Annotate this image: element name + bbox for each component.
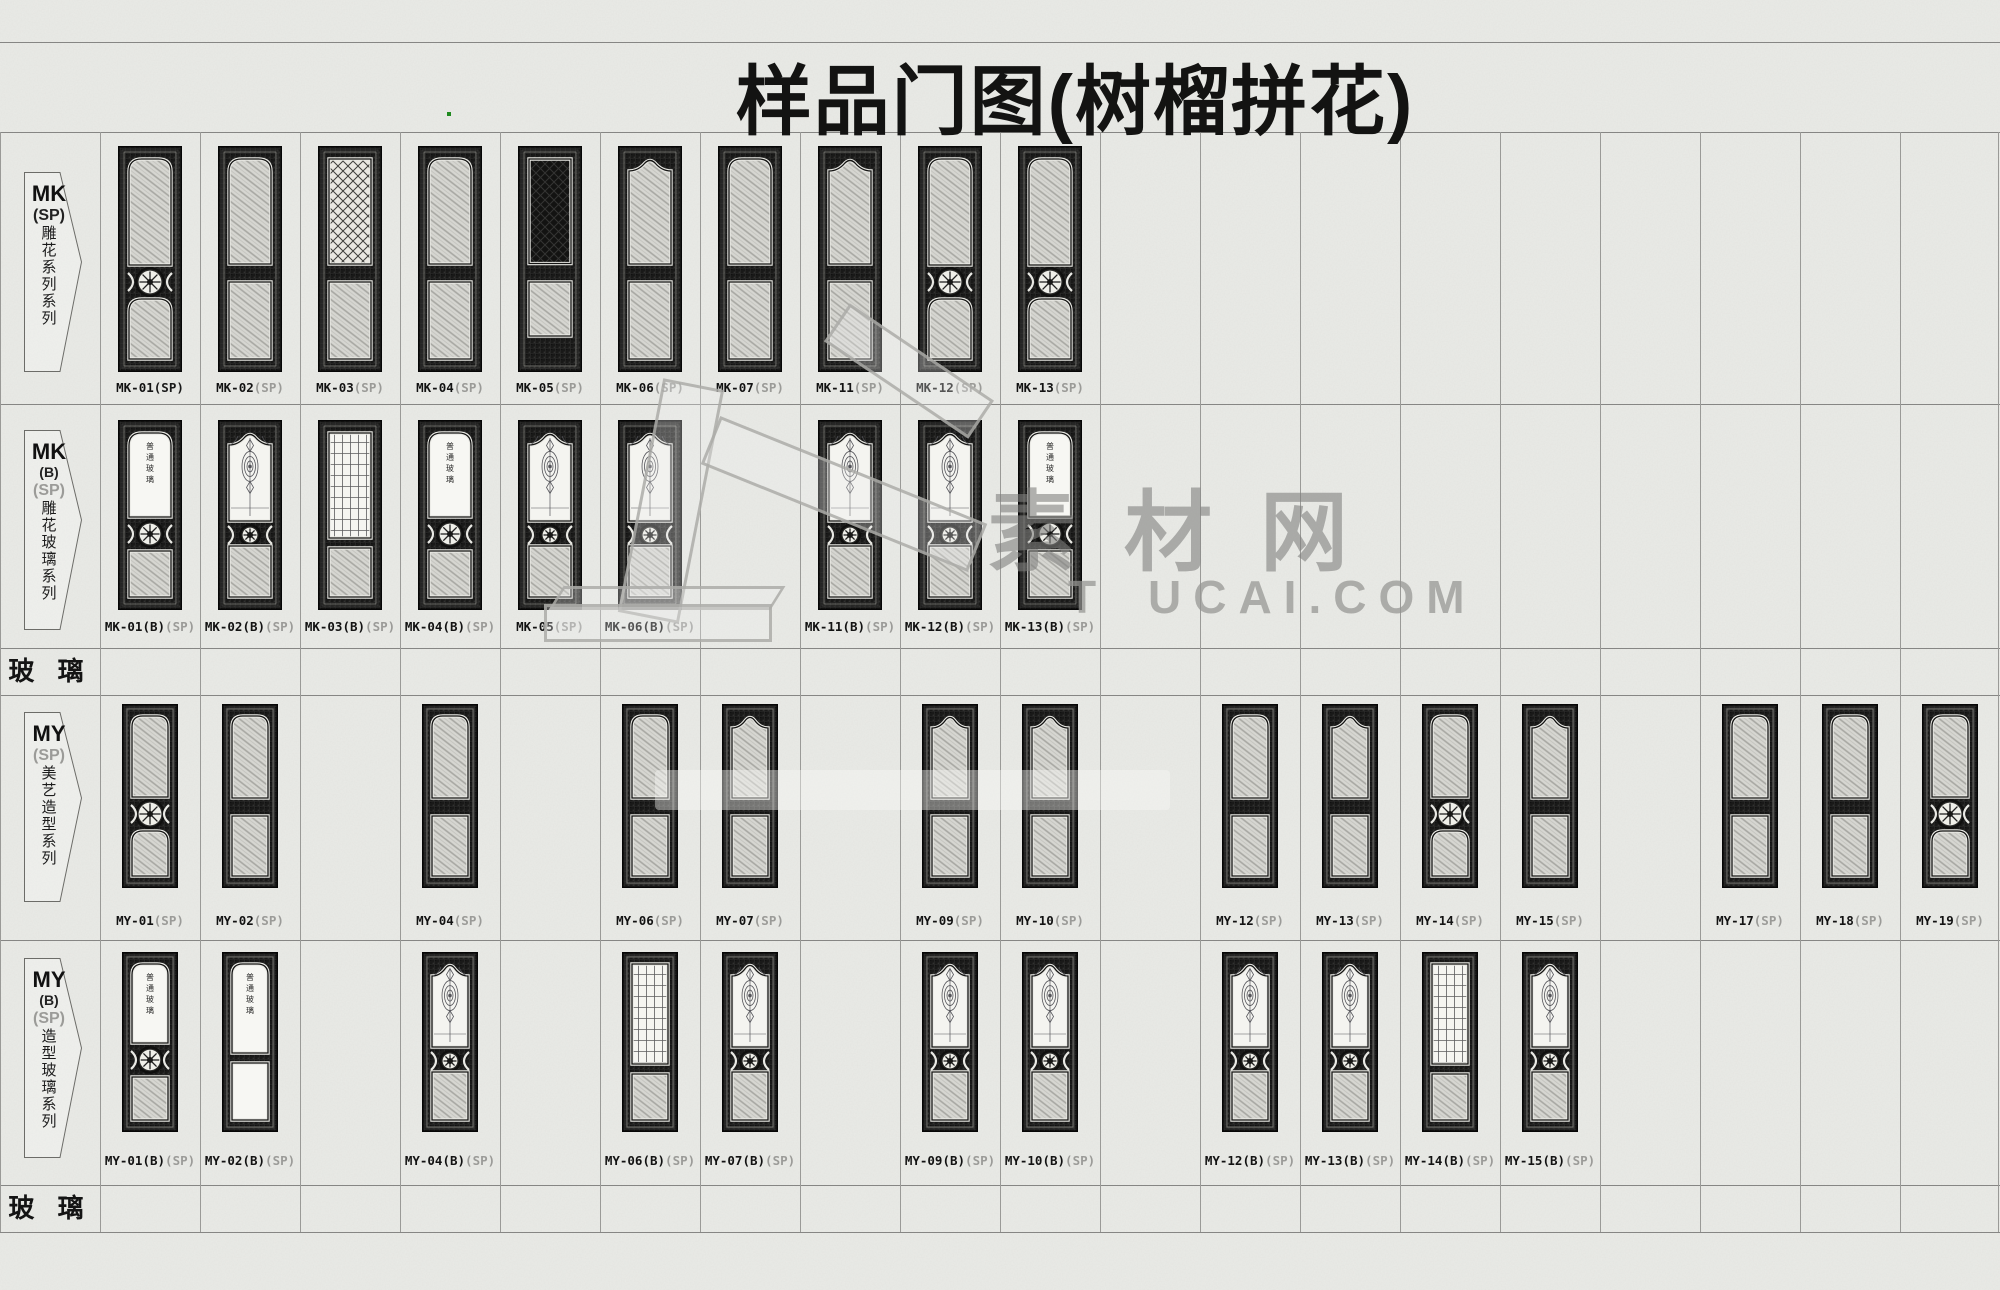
grid-vline — [1900, 132, 1901, 1232]
door-code: MK-02(B) — [205, 619, 265, 634]
series-name-char: 造 — [26, 1028, 72, 1045]
series-suffix: (SP) — [26, 206, 72, 225]
door-code-suffix: (SP) — [554, 380, 584, 395]
page-title: 样品门图(树榴拼花) — [0, 40, 2000, 150]
svg-text:璃: 璃 — [246, 1005, 254, 1015]
grid-vline — [1998, 132, 1999, 1232]
series-name-char: 玻 — [26, 534, 72, 551]
door-label: MK-07(SP) — [700, 380, 800, 395]
door-code: MY-07(B) — [705, 1153, 765, 1168]
door-code-suffix: (SP) — [954, 913, 984, 928]
door-my-09b — [922, 952, 978, 1132]
door-code: MK-13(B) — [1005, 619, 1065, 634]
svg-text:通: 通 — [146, 983, 154, 993]
svg-text:通: 通 — [446, 452, 454, 462]
svg-text:玻: 玻 — [246, 994, 254, 1004]
grid-vline — [800, 132, 801, 1232]
grid-vline — [1200, 132, 1201, 1232]
door-mk-05 — [518, 146, 582, 372]
door-my-09 — [922, 704, 978, 888]
door-code: MY-04(B) — [405, 1153, 465, 1168]
grid-vline — [400, 132, 401, 1232]
series-badge-mk-b-sp: MK(B)(SP)雕花玻璃系列 — [24, 430, 82, 630]
door-label: MK-06(B)(SP) — [600, 619, 700, 634]
grid-vline — [500, 132, 501, 1232]
door-code-suffix: (SP) — [1054, 913, 1084, 928]
door-code: MY-12(B) — [1205, 1153, 1265, 1168]
door-code-suffix: (SP) — [1354, 913, 1384, 928]
door-code: MY-14(B) — [1405, 1153, 1465, 1168]
door-mk-12b — [918, 420, 982, 610]
door-code: MY-13(B) — [1305, 1153, 1365, 1168]
door-code-suffix: (SP) — [665, 619, 695, 634]
door-code: MY-12 — [1216, 913, 1254, 928]
door-code: MY-06(B) — [605, 1153, 665, 1168]
series-name-char: 系 — [26, 259, 72, 276]
door-code-suffix: (SP) — [465, 1153, 495, 1168]
door-my-06 — [622, 704, 678, 888]
door-code-suffix: (SP) — [1554, 913, 1584, 928]
series-name-char: 造 — [26, 799, 72, 816]
series-badge-my-b-sp: MY(B)(SP)造型玻璃系列 — [24, 958, 82, 1158]
series-name-char: 列 — [26, 850, 72, 867]
door-code: MK-05 — [516, 380, 554, 395]
grid-vline — [1100, 132, 1101, 1232]
door-code-suffix: (SP) — [454, 380, 484, 395]
door-label: MK-13(SP) — [1000, 380, 1100, 395]
door-code: MK-11 — [816, 380, 854, 395]
svg-text:璃: 璃 — [146, 1005, 154, 1015]
grid-vline — [1500, 132, 1501, 1232]
door-mk-07 — [718, 146, 782, 372]
grid-vline — [1400, 132, 1401, 1232]
door-code-suffix: (SP) — [1954, 913, 1984, 928]
door-code: MK-04 — [416, 380, 454, 395]
door-label: MY-10(B)(SP) — [1000, 1153, 1100, 1168]
door-code: MY-09 — [916, 913, 954, 928]
series-name-char: 列 — [26, 585, 72, 602]
door-code-suffix: (SP) — [154, 380, 184, 395]
door-mk-06b — [618, 420, 682, 610]
door-code: MY-14 — [1416, 913, 1454, 928]
door-mk-05 — [518, 420, 582, 610]
grid-vline — [900, 132, 901, 1232]
door-label: MY-06(SP) — [600, 913, 700, 928]
door-label: MY-01(SP) — [100, 913, 200, 928]
door-mk-01b: 普通玻璃 — [118, 420, 182, 610]
door-mk-12 — [918, 146, 982, 372]
door-code-suffix: (SP) — [1754, 913, 1784, 928]
door-label: MK-03(SP) — [300, 380, 400, 395]
grid-vline — [1700, 132, 1701, 1232]
series-name-char: 系 — [26, 568, 72, 585]
door-my-18 — [1822, 704, 1878, 888]
series-variant: (B) — [26, 992, 72, 1009]
series-code: MK — [26, 440, 72, 464]
svg-text:普: 普 — [146, 972, 154, 982]
door-label: MY-04(SP) — [400, 913, 500, 928]
svg-text:普: 普 — [146, 441, 154, 451]
door-my-12b — [1222, 952, 1278, 1132]
door-code: MK-03 — [316, 380, 354, 395]
door-label: MY-07(SP) — [700, 913, 800, 928]
door-code-suffix: (SP) — [554, 619, 584, 634]
door-my-01 — [122, 704, 178, 888]
door-mk-13b: 普通玻璃 — [1018, 420, 1082, 610]
door-my-02 — [222, 704, 278, 888]
series-name-char: 璃 — [26, 1079, 72, 1096]
series-badge-text: MY(B)(SP)造型玻璃系列 — [26, 968, 72, 1130]
door-mk-03b — [318, 420, 382, 610]
door-label: MK-02(B)(SP) — [200, 619, 300, 634]
door-code: MY-06 — [616, 913, 654, 928]
door-label: MK-11(B)(SP) — [800, 619, 900, 634]
series-name-char: 玻 — [26, 1062, 72, 1079]
door-code: MY-13 — [1316, 913, 1354, 928]
grid-vline — [1800, 132, 1801, 1232]
door-code-suffix: (SP) — [1854, 913, 1884, 928]
grid-vline — [1600, 132, 1601, 1232]
door-label: MY-13(SP) — [1300, 913, 1400, 928]
door-mk-13 — [1018, 146, 1082, 372]
door-mk-04 — [418, 146, 482, 372]
door-code-suffix: (SP) — [765, 1153, 795, 1168]
door-code-suffix: (SP) — [1065, 619, 1095, 634]
door-my-14 — [1422, 704, 1478, 888]
door-label: MY-19(SP) — [1900, 913, 2000, 928]
door-code-suffix: (SP) — [954, 380, 984, 395]
door-label: MY-14(B)(SP) — [1400, 1153, 1500, 1168]
door-code: MY-15 — [1516, 913, 1554, 928]
door-code-suffix: (SP) — [365, 619, 395, 634]
door-mk-02 — [218, 146, 282, 372]
door-label: MK-13(B)(SP) — [1000, 619, 1100, 634]
door-label: MY-09(B)(SP) — [900, 1153, 1000, 1168]
door-code-suffix: (SP) — [965, 1153, 995, 1168]
svg-text:普: 普 — [1046, 441, 1054, 451]
series-variant: (B) — [26, 464, 72, 481]
svg-text:普: 普 — [446, 441, 454, 451]
door-label: MY-13(B)(SP) — [1300, 1153, 1400, 1168]
svg-text:通: 通 — [1046, 452, 1054, 462]
door-my-07 — [722, 704, 778, 888]
door-my-07b — [722, 952, 778, 1132]
grid-hline — [0, 1232, 2000, 1233]
door-label: MY-01(B)(SP) — [100, 1153, 200, 1168]
door-code-suffix: (SP) — [1065, 1153, 1095, 1168]
door-code: MK-06 — [616, 380, 654, 395]
door-my-19 — [1922, 704, 1978, 888]
series-name-char: 型 — [26, 816, 72, 833]
artifact-dot — [447, 112, 451, 116]
door-code: MY-02(B) — [205, 1153, 265, 1168]
door-code-suffix: (SP) — [754, 913, 784, 928]
series-name-char: 型 — [26, 1045, 72, 1062]
series-name-char: 璃 — [26, 551, 72, 568]
door-code-suffix: (SP) — [254, 380, 284, 395]
grid-vline — [1000, 132, 1001, 1232]
svg-text:玻: 玻 — [446, 463, 454, 473]
glass-row-label: 玻 璃 — [0, 648, 100, 695]
door-code: MK-02 — [216, 380, 254, 395]
door-my-04 — [422, 704, 478, 888]
series-name-char: 美 — [26, 765, 72, 782]
door-code-suffix: (SP) — [1254, 913, 1284, 928]
series-name-char: 花 — [26, 517, 72, 534]
series-name-char: 系 — [26, 293, 72, 310]
door-label: MK-04(B)(SP) — [400, 619, 500, 634]
door-label: MY-14(SP) — [1400, 913, 1500, 928]
door-code-suffix: (SP) — [1454, 913, 1484, 928]
series-badge-text: MY(SP)美艺造型系列 — [26, 722, 72, 867]
door-code: MK-12(B) — [905, 619, 965, 634]
door-code: MY-04 — [416, 913, 454, 928]
door-code: MK-05 — [516, 619, 554, 634]
door-code-suffix: (SP) — [654, 913, 684, 928]
door-code: MY-01 — [116, 913, 154, 928]
door-code-suffix: (SP) — [454, 913, 484, 928]
door-label: MY-02(B)(SP) — [200, 1153, 300, 1168]
door-label: MY-18(SP) — [1800, 913, 1900, 928]
series-name-char: 系 — [26, 833, 72, 850]
door-label: MY-07(B)(SP) — [700, 1153, 800, 1168]
door-my-15b — [1522, 952, 1578, 1132]
door-my-06b — [622, 952, 678, 1132]
door-code: MY-17 — [1716, 913, 1754, 928]
door-code: MK-11(B) — [805, 619, 865, 634]
door-code: MY-15(B) — [1505, 1153, 1565, 1168]
door-label: MY-12(SP) — [1200, 913, 1300, 928]
door-code: MK-03(B) — [305, 619, 365, 634]
grid-vline — [300, 132, 301, 1232]
door-label: MK-12(SP) — [900, 380, 1000, 395]
door-my-10b — [1022, 952, 1078, 1132]
door-label: MK-05(SP) — [500, 380, 600, 395]
door-code-suffix: (SP) — [654, 380, 684, 395]
door-code: MY-18 — [1816, 913, 1854, 928]
series-name-char: 花 — [26, 242, 72, 259]
series-code: MK — [26, 182, 72, 206]
door-label: MY-10(SP) — [1000, 913, 1100, 928]
door-label: MK-01(SP) — [100, 380, 200, 395]
door-label: MK-12(B)(SP) — [900, 619, 1000, 634]
door-label: MY-17(SP) — [1700, 913, 1800, 928]
door-label: MY-15(SP) — [1500, 913, 1600, 928]
series-name-char: 雕 — [26, 225, 72, 242]
series-suffix: (SP) — [26, 746, 72, 765]
door-code-suffix: (SP) — [1265, 1153, 1295, 1168]
door-my-01b: 普通玻璃 — [122, 952, 178, 1132]
grid-vline — [100, 132, 101, 1232]
door-mk-11b — [818, 420, 882, 610]
svg-text:通: 通 — [146, 452, 154, 462]
door-my-13b — [1322, 952, 1378, 1132]
door-code-suffix: (SP) — [165, 619, 195, 634]
door-mk-04b: 普通玻璃 — [418, 420, 482, 610]
door-code-suffix: (SP) — [154, 913, 184, 928]
watermark-domain: UCAI.COM — [1148, 570, 1477, 624]
door-label: MY-09(SP) — [900, 913, 1000, 928]
door-code: MK-01 — [116, 380, 154, 395]
door-code: MY-09(B) — [905, 1153, 965, 1168]
door-my-14b — [1422, 952, 1478, 1132]
svg-text:通: 通 — [246, 983, 254, 993]
series-name-char: 艺 — [26, 782, 72, 799]
svg-text:璃: 璃 — [446, 474, 454, 484]
series-badge-text: MK(B)(SP)雕花玻璃系列 — [26, 440, 72, 602]
grid-vline — [700, 132, 701, 1232]
door-code-suffix: (SP) — [754, 380, 784, 395]
door-label: MY-04(B)(SP) — [400, 1153, 500, 1168]
series-name-char: 列 — [26, 1113, 72, 1130]
door-code-suffix: (SP) — [965, 619, 995, 634]
door-label: MY-12(B)(SP) — [1200, 1153, 1300, 1168]
door-code-suffix: (SP) — [265, 1153, 295, 1168]
door-label: MY-02(SP) — [200, 913, 300, 928]
svg-text:璃: 璃 — [1046, 474, 1054, 484]
door-mk-11 — [818, 146, 882, 372]
door-code-suffix: (SP) — [865, 619, 895, 634]
door-code: MY-19 — [1916, 913, 1954, 928]
door-code-suffix: (SP) — [165, 1153, 195, 1168]
door-code-suffix: (SP) — [1365, 1153, 1395, 1168]
door-code: MK-13 — [1016, 380, 1054, 395]
door-mk-06 — [618, 146, 682, 372]
door-mk-01 — [118, 146, 182, 372]
door-code: MY-07 — [716, 913, 754, 928]
series-code: MY — [26, 722, 72, 746]
door-my-13 — [1322, 704, 1378, 888]
series-name-char: 系 — [26, 1096, 72, 1113]
door-code: MK-07 — [716, 380, 754, 395]
door-code-suffix: (SP) — [1054, 380, 1084, 395]
drawing-sheet: 样品门图(树榴拼花) MK(SP)雕花系列系列MK-01(SP)MK-02(SP… — [0, 0, 2000, 1290]
door-code: MY-10(B) — [1005, 1153, 1065, 1168]
door-code: MK-04(B) — [405, 619, 465, 634]
series-badge-my-sp: MY(SP)美艺造型系列 — [24, 712, 82, 902]
series-suffix: (SP) — [26, 481, 72, 500]
series-suffix: (SP) — [26, 1009, 72, 1028]
door-label: MK-05(SP) — [500, 619, 600, 634]
door-label: MK-01(B)(SP) — [100, 619, 200, 634]
door-label: MK-02(SP) — [200, 380, 300, 395]
door-code: MY-01(B) — [105, 1153, 165, 1168]
door-label: MY-06(B)(SP) — [600, 1153, 700, 1168]
svg-text:玻: 玻 — [146, 994, 154, 1004]
door-code: MY-10 — [1016, 913, 1054, 928]
svg-text:璃: 璃 — [146, 474, 154, 484]
grid-vline — [600, 132, 601, 1232]
door-code-suffix: (SP) — [265, 619, 295, 634]
svg-text:玻: 玻 — [1046, 463, 1054, 473]
door-label: MY-15(B)(SP) — [1500, 1153, 1600, 1168]
door-my-04b — [422, 952, 478, 1132]
door-code: MK-01(B) — [105, 619, 165, 634]
series-name-char: 列 — [26, 276, 72, 293]
door-label: MK-06(SP) — [600, 380, 700, 395]
glass-row-label: 玻 璃 — [0, 1185, 100, 1232]
door-mk-02b — [218, 420, 282, 610]
door-my-17 — [1722, 704, 1778, 888]
grid-vline — [1300, 132, 1301, 1232]
door-code-suffix: (SP) — [1565, 1153, 1595, 1168]
grid-vline — [200, 132, 201, 1232]
series-name-char: 列 — [26, 310, 72, 327]
door-code-suffix: (SP) — [854, 380, 884, 395]
door-my-02b: 普通玻璃 — [222, 952, 278, 1132]
series-code: MY — [26, 968, 72, 992]
series-badge-text: MK(SP)雕花系列系列 — [26, 182, 72, 327]
door-code: MK-06(B) — [605, 619, 665, 634]
svg-text:普: 普 — [246, 972, 254, 982]
door-code: MK-12 — [916, 380, 954, 395]
door-my-10 — [1022, 704, 1078, 888]
door-code-suffix: (SP) — [665, 1153, 695, 1168]
door-mk-03 — [318, 146, 382, 372]
door-my-15 — [1522, 704, 1578, 888]
door-code-suffix: (SP) — [254, 913, 284, 928]
door-code-suffix: (SP) — [1465, 1153, 1495, 1168]
door-label: MK-03(B)(SP) — [300, 619, 400, 634]
door-code: MY-02 — [216, 913, 254, 928]
svg-text:玻: 玻 — [146, 463, 154, 473]
door-label: MK-11(SP) — [800, 380, 900, 395]
series-name-char: 雕 — [26, 500, 72, 517]
door-label: MK-04(SP) — [400, 380, 500, 395]
door-my-12 — [1222, 704, 1278, 888]
door-code-suffix: (SP) — [465, 619, 495, 634]
door-code-suffix: (SP) — [354, 380, 384, 395]
series-badge-mk-sp: MK(SP)雕花系列系列 — [24, 172, 82, 372]
